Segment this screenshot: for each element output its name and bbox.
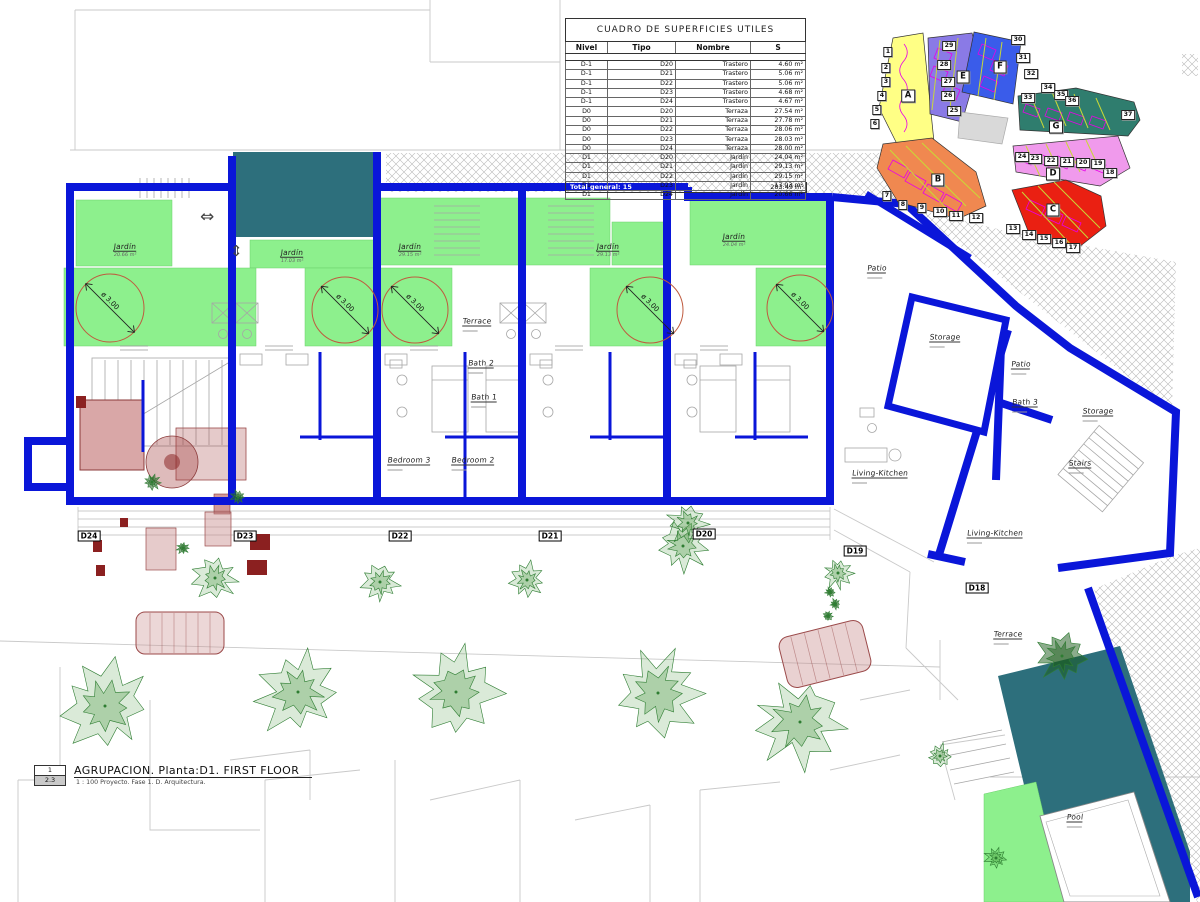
schedule-cell: Terraza [676, 126, 751, 135]
schedule-row: D-1D24Trastero4.67 m² [566, 98, 806, 107]
schedule-cell: Jardín [676, 163, 751, 172]
schedule-cell: 28.03 m² [751, 135, 806, 144]
schedule-cell: D1 [566, 163, 608, 172]
tree-center [214, 577, 217, 580]
schedule-row: D0D20Terraza27.54 m² [566, 107, 806, 116]
pergola [136, 612, 224, 654]
col-header-s: S [751, 42, 806, 54]
tree-center [379, 581, 382, 584]
tree-center [182, 547, 185, 550]
tree-center [827, 615, 830, 618]
sheet-ref: 2.3 [34, 776, 66, 786]
tree-center [939, 755, 942, 758]
schedule-cell: D0 [566, 107, 608, 116]
tree-center [104, 705, 107, 708]
schedule-row: D1D22Jardín29.15 m² [566, 172, 806, 181]
terrace-louvers [78, 507, 830, 540]
schedule-cell: D1 [566, 172, 608, 181]
tree-center [455, 691, 458, 694]
tree-center [995, 857, 998, 860]
schedule-cell: 28.06 m² [751, 126, 806, 135]
drawing-title: AGRUPACION. Planta:D1. FIRST FLOOR [74, 764, 312, 778]
schedule-cell: D1 [566, 153, 608, 162]
schedule-cell: D24 [608, 98, 676, 107]
schedule-row: D-1D22Trastero5.06 m² [566, 79, 806, 88]
tree-center [297, 691, 300, 694]
schedule-cell: Trastero [676, 70, 751, 79]
tree-center [657, 692, 660, 695]
double-arrow-horizontal-icon: ⇔ [200, 207, 214, 227]
schedule-cell: D-1 [566, 61, 608, 70]
tree-center [829, 591, 832, 594]
schedule-row: D-1D20Trastero4.60 m² [566, 61, 806, 70]
schedule-cell: 27.78 m² [751, 116, 806, 125]
schedule-cell: D22 [608, 79, 676, 88]
schedule-cell: D-1 [566, 88, 608, 97]
col-header-tipo: Tipo [608, 42, 676, 54]
schedule-cell: Trastero [676, 79, 751, 88]
schedule-row: D0D21Terraza27.78 m² [566, 116, 806, 125]
schedule-cell: D21 [608, 163, 676, 172]
schedule-cell: 5.06 m² [751, 70, 806, 79]
schedule-cell: D21 [608, 116, 676, 125]
schedule-total-value: 283.49 m² [770, 182, 804, 192]
schedule-cell: D22 [608, 126, 676, 135]
schedule-cell: D0 [566, 116, 608, 125]
key-plan [866, 32, 1140, 258]
schedule-cell: Terraza [676, 116, 751, 125]
schedule-cell: 28.00 m² [751, 144, 806, 153]
schedule-cell: D0 [566, 135, 608, 144]
detail-number: 1 [34, 765, 66, 776]
schedule-cell: Terraza [676, 135, 751, 144]
schedule-cell: Trastero [676, 98, 751, 107]
schedule-cell: D0 [566, 126, 608, 135]
tree-center [837, 572, 840, 575]
schedule-cell: 5.06 m² [751, 79, 806, 88]
tree-center [687, 522, 690, 525]
double-arrow-vertical-icon: ⇕ [230, 242, 243, 260]
col-header-nivel: Nivel [566, 42, 608, 54]
schedule-row: D0D24Terraza28.00 m² [566, 144, 806, 153]
schedule-cell: D24 [608, 144, 676, 153]
schedule-cell: 4.60 m² [751, 61, 806, 70]
schedule-cell: 29.13 m² [751, 163, 806, 172]
drawing-sheet: ⇔ ⇕ ø 3.00ø 3.00ø 3.00ø 3.00ø 3.00 CUADR… [0, 0, 1200, 902]
key-block-D [1013, 136, 1130, 186]
schedule-cell: D20 [608, 153, 676, 162]
pergola-2 [777, 618, 873, 689]
schedule-row: D-1D23Trastero4.68 m² [566, 88, 806, 97]
tree-center [1061, 655, 1064, 658]
tree-center [237, 496, 240, 499]
schedule-row: D0D23Terraza28.03 m² [566, 135, 806, 144]
schedule-cell: D23 [608, 135, 676, 144]
schedule-total-label: Total general: 15 [570, 182, 632, 192]
schedule-cell: D22 [608, 172, 676, 181]
schedule-cell: Jardín [676, 153, 751, 162]
schedule-cell: Terraza [676, 107, 751, 116]
schedule-cell: Terraza [676, 144, 751, 153]
schedule-cell: D-1 [566, 70, 608, 79]
schedule-total-row: Total general: 15 283.49 m² [565, 182, 807, 193]
schedule-row: D0D22Terraza28.06 m² [566, 126, 806, 135]
schedule-cell: 4.67 m² [751, 98, 806, 107]
schedule-row: D1D21Jardín29.13 m² [566, 163, 806, 172]
schedule-cell: D23 [608, 88, 676, 97]
upper-deck [233, 152, 379, 237]
key-block-G [1018, 88, 1140, 136]
schedule-cell: D20 [608, 61, 676, 70]
schedule-cell: Trastero [676, 88, 751, 97]
drawing-scale: 1 : 100 Proyecto. Fase 1. D. Arquitectur… [76, 779, 206, 786]
red-furniture [76, 396, 873, 690]
key-block-gray [958, 112, 1008, 144]
schedule-cell: 4.68 m² [751, 88, 806, 97]
schedule-row: D1D20Jardín24.04 m² [566, 153, 806, 162]
schedule-header-row: Nivel Tipo Nombre S [566, 42, 806, 54]
schedule-cell: D20 [608, 107, 676, 116]
tree-center [682, 545, 685, 548]
tree-center [834, 603, 837, 606]
schedule-cell: 27.54 m² [751, 107, 806, 116]
schedule-row: D-1D21Trastero5.06 m² [566, 70, 806, 79]
tree-center [799, 721, 802, 724]
wing-storage-room [888, 297, 1006, 432]
schedule-cell: Jardín [676, 172, 751, 181]
wing-stairs [1058, 425, 1144, 511]
schedule-cell: D-1 [566, 98, 608, 107]
schedule-cell: D21 [608, 70, 676, 79]
schedule-title: CUADRO DE SUPERFICIES UTILES [566, 19, 806, 42]
surface-schedule-table: CUADRO DE SUPERFICIES UTILES Nivel Tipo … [565, 18, 806, 200]
tree-center [151, 481, 154, 484]
col-header-nombre: Nombre [676, 42, 751, 54]
schedule-cell: 24.04 m² [751, 153, 806, 162]
schedule-cell: D-1 [566, 79, 608, 88]
schedule-cell: Trastero [676, 61, 751, 70]
tree-center [526, 579, 529, 582]
schedule-cell: 29.15 m² [751, 172, 806, 181]
schedule-cell: D0 [566, 144, 608, 153]
